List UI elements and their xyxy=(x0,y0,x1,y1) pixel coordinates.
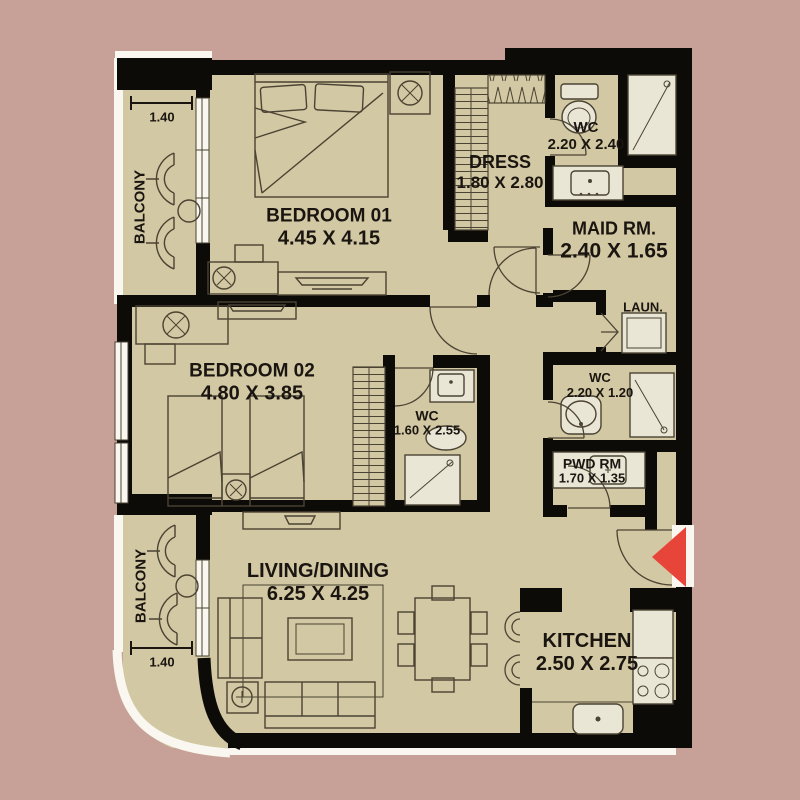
shower-master xyxy=(628,75,676,155)
shower-wc-guest xyxy=(630,373,674,437)
window-bedroom02-left xyxy=(115,342,128,503)
wardrobe-bedroom02 xyxy=(353,367,385,506)
toilet-wc-bedroom02 xyxy=(426,426,466,450)
outer-edge-top xyxy=(115,51,212,59)
sink-wc-guest xyxy=(561,396,601,434)
sink-wc-bedroom02 xyxy=(430,370,474,402)
floor-plan: BEDROOM 01 4.45 X 4.15 DRESS 1.80 X 2.80… xyxy=(0,0,800,800)
washing-machine xyxy=(622,313,666,353)
sink-master xyxy=(553,166,623,200)
sink-powder xyxy=(553,452,645,488)
window-balcony-bottom xyxy=(196,560,209,656)
outer-edge-bottom xyxy=(230,748,676,755)
outer-edge-left-bottom xyxy=(114,515,123,652)
toilet-master xyxy=(561,84,598,133)
shower-wc-bedroom02 xyxy=(405,455,460,505)
window-balcony-top xyxy=(196,98,209,243)
floor-plan-drawing xyxy=(0,0,800,800)
fridge-kitchen xyxy=(633,610,673,658)
outer-edge-left-top xyxy=(114,58,123,304)
stove-kitchen xyxy=(633,658,673,704)
